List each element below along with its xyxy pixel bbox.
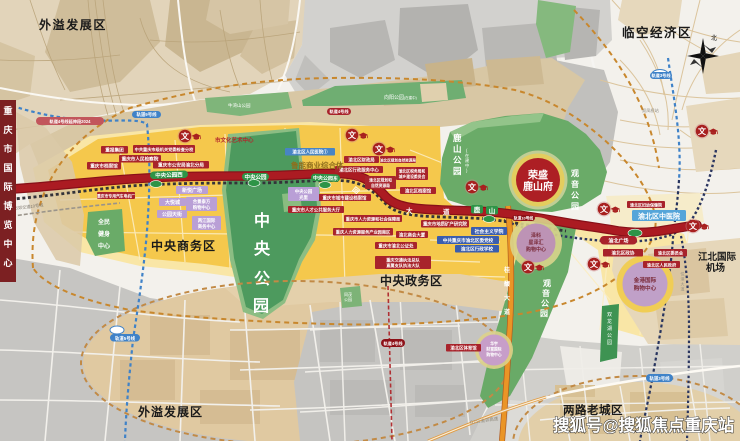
svg-text:公: 公 — [571, 191, 579, 200]
svg-text:金港国际: 金港国际 — [633, 276, 657, 284]
svg-text:重庆市公安局渝北分局: 重庆市公安局渝北分局 — [158, 162, 204, 169]
svg-text:道: 道 — [443, 207, 450, 216]
svg-text:渝北区税务局和: 渝北区税务局和 — [399, 169, 426, 174]
svg-text:园: 园 — [453, 166, 462, 176]
svg-text:轨道4号线: 轨道4号线 — [329, 108, 349, 115]
svg-text:中央公园东: 中央公园东 — [313, 174, 338, 182]
svg-text:鹿山府: 鹿山府 — [523, 180, 553, 193]
svg-text:外溢发展区: 外溢发展区 — [39, 17, 107, 32]
svg-text:牛湾山公园: 牛湾山公园 — [228, 102, 251, 109]
svg-text:渝北区行政学校: 渝北区行政学校 — [461, 246, 494, 253]
svg-text:商务中心: 商务中心 — [198, 223, 216, 230]
svg-text:鹿: 鹿 — [452, 133, 462, 143]
svg-text:公: 公 — [607, 333, 612, 339]
svg-text:机场: 机场 — [706, 262, 726, 274]
svg-text:庆: 庆 — [2, 124, 12, 135]
svg-text:园: 园 — [253, 297, 269, 315]
svg-text:园: 园 — [571, 202, 579, 211]
svg-text:购物中心: 购物中心 — [634, 284, 657, 292]
svg-text:华宇: 华宇 — [490, 341, 498, 346]
svg-text:中央政务区: 中央政务区 — [380, 273, 443, 288]
svg-text:健身: 健身 — [98, 230, 110, 238]
svg-text:新悦广场: 新悦广场 — [182, 187, 202, 194]
svg-text:际: 际 — [3, 182, 12, 192]
svg-text:鲁能商业综合体: 鲁能商业综合体 — [291, 160, 344, 170]
svg-text:购物中心: 购物中心 — [193, 204, 211, 211]
svg-text:道: 道 — [504, 308, 510, 316]
svg-text:自然资源局: 自然资源局 — [371, 183, 390, 188]
svg-text:中共重庆市级机关党委检查分校: 中共重庆市级机关党委检查分校 — [135, 146, 194, 153]
svg-text:泽科: 泽科 — [531, 232, 541, 239]
svg-text:国: 国 — [3, 163, 12, 173]
svg-text:购物中心: 购物中心 — [526, 246, 546, 253]
svg-text:荣盛: 荣盛 — [527, 169, 548, 182]
svg-text:心: 心 — [3, 258, 12, 268]
svg-text:湖: 湖 — [607, 325, 612, 332]
svg-text:公: 公 — [254, 270, 270, 288]
svg-text:渝北区人民医院①: 渝北区人民医院① — [292, 149, 328, 156]
svg-text:山: 山 — [453, 144, 462, 154]
svg-text:重庆人力资源服务产业园南区: 重庆人力资源服务产业园南区 — [336, 229, 391, 236]
svg-text:中央公园: 中央公园 — [295, 188, 313, 195]
svg-text:馥: 馥 — [504, 280, 511, 288]
svg-text:两江国际: 两江国际 — [198, 217, 216, 224]
svg-text:双: 双 — [607, 312, 612, 318]
svg-text:渝北区财政局: 渝北区财政局 — [348, 156, 375, 163]
svg-text:音: 音 — [571, 179, 579, 189]
svg-text:轨道3号线: 轨道3号线 — [651, 72, 671, 79]
svg-text:合景泰方: 合景泰方 — [193, 198, 211, 205]
svg-text:重庆市专用汽车电机厂: 重庆市专用汽车电机厂 — [97, 193, 135, 198]
svg-text:中: 中 — [254, 211, 270, 230]
svg-text:公: 公 — [541, 299, 549, 308]
svg-text:中心: 中心 — [98, 242, 110, 250]
svg-text:公: 公 — [453, 155, 462, 165]
svg-text:博: 博 — [3, 200, 12, 211]
svg-text:轨道10号线: 轨道10号线 — [514, 216, 534, 221]
svg-text:重报集团: 重报集团 — [105, 147, 124, 154]
svg-text:桂: 桂 — [503, 266, 510, 274]
svg-text:中央商务区: 中央商务区 — [151, 238, 216, 253]
svg-text:渝北商会大厦: 渝北商会大厦 — [399, 231, 426, 238]
svg-text:外溢发展区: 外溢发展区 — [138, 404, 203, 419]
svg-text:大悦城: 大悦城 — [165, 199, 180, 206]
svg-text:悦港大道: 悦港大道 — [681, 271, 686, 292]
svg-text:星泽汇: 星泽汇 — [528, 239, 543, 246]
svg-text:搜狐号@搜狐焦点重庆站: 搜狐号@搜狐焦点重庆站 — [553, 415, 735, 435]
svg-text:大: 大 — [406, 206, 413, 215]
svg-text:观: 观 — [543, 279, 551, 288]
svg-text:轨道9号线: 轨道9号线 — [136, 111, 157, 118]
svg-text:园: 园 — [607, 340, 612, 346]
svg-text:龙: 龙 — [607, 318, 612, 325]
svg-text:渝北区规划和: 渝北区规划和 — [369, 178, 392, 183]
svg-text:渝北区体育馆: 渝北区体育馆 — [450, 345, 477, 352]
svg-text:渝北区人民政府: 渝北区人民政府 — [647, 261, 677, 268]
svg-text:公园: 公园 — [344, 296, 352, 302]
svg-text:重庆市人力资源和社会保障局: 重庆市人力资源和社会保障局 — [346, 215, 400, 222]
svg-text:观: 观 — [571, 169, 579, 178]
svg-text:江北国际: 江北国际 — [698, 251, 737, 263]
svg-text:双凤桥站: 双凤桥站 — [642, 107, 659, 114]
svg-text:大: 大 — [504, 294, 510, 302]
svg-text:轨道4号线延伸段2024: 轨道4号线延伸段2024 — [50, 118, 92, 125]
svg-text:轨道5号线: 轨道5号线 — [115, 335, 136, 342]
svg-text:向阳公园(在建中): 向阳公园(在建中) — [384, 94, 417, 101]
svg-text:渝北区行政服务中心: 渝北区行政服务中心 — [339, 166, 379, 173]
svg-text:央: 央 — [254, 239, 271, 258]
svg-text:财富国际: 财富国际 — [485, 347, 501, 352]
svg-text:光里: 光里 — [298, 194, 308, 201]
svg-text:公园天街: 公园天街 — [162, 211, 182, 218]
svg-text:览: 览 — [3, 219, 12, 230]
svg-text:社会主义学院: 社会主义学院 — [474, 228, 504, 235]
svg-text:两路老城区: 两路老城区 — [563, 403, 623, 417]
svg-text:中共重庆市渝北区委党校: 中共重庆市渝北区委党校 — [443, 237, 494, 244]
svg-text:重庆市档案馆: 重庆市档案馆 — [90, 163, 118, 170]
svg-text:轨道4号线: 轨道4号线 — [383, 340, 403, 347]
svg-text:渝北区政协: 渝北区政协 — [612, 250, 635, 257]
svg-text:重庆市渝北公证处: 重庆市渝北公证处 — [378, 242, 414, 249]
svg-text:渝北区档案馆: 渝北区档案馆 — [405, 187, 432, 194]
svg-text:渝北区妇幼保健院: 渝北区妇幼保健院 — [630, 201, 662, 207]
svg-text:园: 园 — [540, 309, 548, 318]
svg-text:北: 北 — [711, 34, 717, 42]
svg-text:重庆市城市建设档案馆: 重庆市城市建设档案馆 — [323, 194, 368, 201]
svg-text:临空经济区: 临空经济区 — [622, 25, 692, 40]
svg-text:山: 山 — [489, 206, 496, 215]
svg-text:购物中心: 购物中心 — [486, 352, 501, 357]
svg-text:渝北区委员会: 渝北区委员会 — [658, 250, 684, 257]
svg-text:音: 音 — [542, 288, 550, 298]
svg-text:渝北区中医院: 渝北区中医院 — [638, 211, 680, 220]
svg-text:渝北区规划自然资源局: 渝北区规划自然资源局 — [380, 157, 416, 162]
svg-text:渝北广场: 渝北广场 — [608, 237, 628, 244]
svg-text:直属支队执法大队: 直属支队执法大队 — [386, 262, 420, 269]
svg-text:重: 重 — [3, 105, 12, 116]
svg-text:鹿: 鹿 — [474, 205, 481, 214]
svg-text:城乡建设委员会: 城乡建设委员会 — [399, 174, 426, 179]
svg-text:市文化艺术中心: 市文化艺术中心 — [215, 136, 254, 144]
svg-text:重庆市人才公共服务大厅: 重庆市人才公共服务大厅 — [292, 206, 341, 213]
svg-text:市: 市 — [3, 143, 12, 154]
svg-text:全民: 全民 — [97, 218, 110, 226]
svg-text:轨道3号线: 轨道3号线 — [649, 375, 670, 382]
svg-text:中: 中 — [3, 238, 12, 249]
svg-text:重庆市地质矿产研究院: 重庆市地质矿产研究院 — [423, 221, 468, 228]
